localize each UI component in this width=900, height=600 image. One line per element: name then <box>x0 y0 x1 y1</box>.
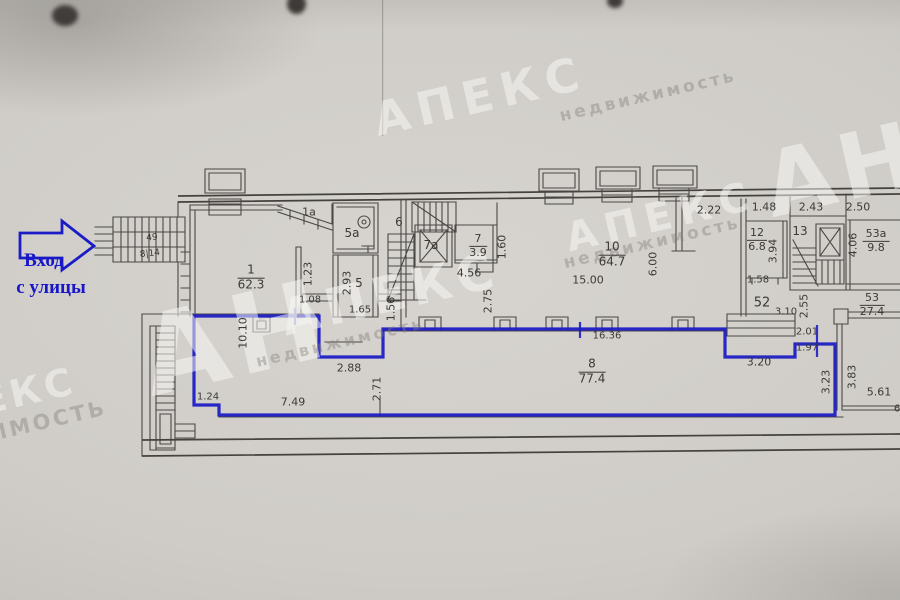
elevator-7a <box>415 225 452 267</box>
toilet-fixture <box>358 216 370 228</box>
toilet-fixture-dot <box>362 220 366 224</box>
room-5-walls <box>301 203 401 317</box>
floorplan-drawing <box>0 0 900 600</box>
stairwell-13 <box>790 216 846 290</box>
stairwell-6 <box>388 200 456 330</box>
entrance-label-line1: Вход <box>24 250 64 272</box>
fire-escape-stair <box>150 326 195 450</box>
room-7-walls <box>455 198 695 272</box>
entrance-label-line2: с улицы <box>16 277 86 299</box>
entrance-stairs <box>95 202 185 316</box>
floorplan-photo: АПЕКСнедвижимостьАНАПЕКСнедвижимостьАНАП… <box>0 0 900 600</box>
